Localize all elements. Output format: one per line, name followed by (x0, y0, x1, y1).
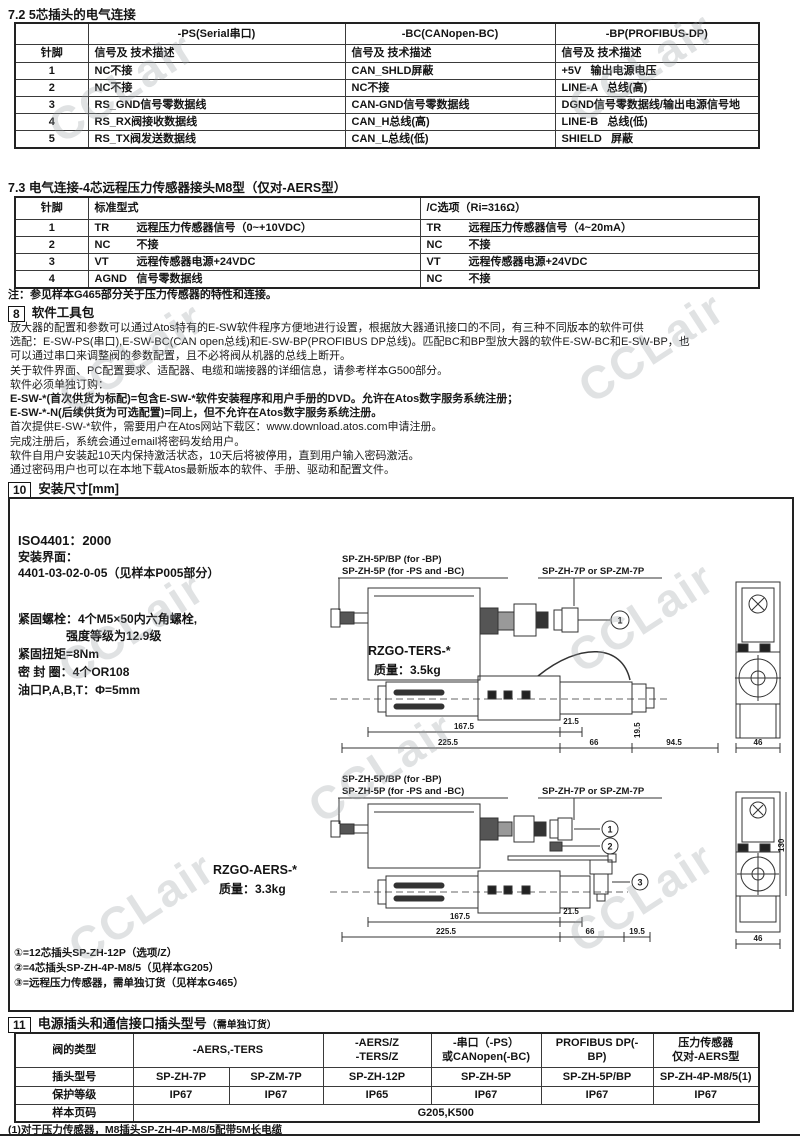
ps-cell: NC不接 (88, 62, 345, 79)
group-z-option: -AERS/Z-TERS/Z (323, 1033, 431, 1067)
plug-cell: SP-ZH-12P (323, 1067, 431, 1086)
pin-cell: 5 (15, 130, 88, 148)
table-row: 针脚 标准型式 /C选项（Ri=316Ω） (15, 197, 759, 219)
signal-code: TR (95, 221, 137, 235)
pin-cell: 1 (15, 219, 88, 236)
ps-cell: RS_TX阀发送数据线 (88, 130, 345, 148)
plug-cell: SP-ZM-7P (229, 1067, 323, 1086)
catalog-pages-cell: G205,K500 (133, 1104, 759, 1122)
signal-code: VT (427, 255, 469, 269)
signal-code: NC (95, 238, 137, 252)
corner-cell (15, 23, 88, 44)
plug-row-label: 插头型号 (15, 1067, 133, 1086)
callout-note-2: ②=4芯插头SP-ZH-4P-M8/5（见样本G205） (14, 961, 244, 976)
dim-21-5: 21.5 (563, 907, 579, 916)
callout-2: 2 (607, 842, 612, 852)
bp-cell: LINE-B 总线(低) (555, 113, 759, 130)
table-row: 1 TR远程压力传感器信号（0~+10VDC） TR远程压力传感器信号（4~20… (15, 219, 759, 236)
group-line: 仅对-AERS型 (660, 1050, 753, 1064)
opt-header: /C选项（Ri=316Ω） (420, 197, 759, 219)
col-header-ps: -PS(Serial串口) (88, 23, 345, 44)
pin-cell: 4 (15, 113, 88, 130)
std-cell: AGND信号零数据线 (88, 270, 420, 288)
mounting-interface-label: 安装界面： (18, 548, 78, 565)
mounting-interface-value: 4401-03-02-0-05（见样本P005部分） (18, 564, 219, 581)
plug-cell: SP-ZH-5P/BP (541, 1067, 653, 1086)
table-row: -PS(Serial串口) -BC(CANopen-BC) -BP(PROFIB… (15, 23, 759, 44)
bc-cell: NC不接 (345, 79, 555, 96)
table-row: 3 RS_GND信号零数据线 CAN-GND信号零数据线 DGND信号零数据线/… (15, 96, 759, 113)
connector-pinout-table: -PS(Serial串口) -BC(CANopen-BC) -BP(PROFIB… (14, 22, 760, 149)
ip-cell: IP67 (133, 1086, 229, 1104)
bp-cell: +5V 输出电源电压 (555, 62, 759, 79)
pin-header: 针脚 (15, 197, 88, 219)
opt-cell: VT远程传感器电源+24VDC (420, 253, 759, 270)
std-cell: NC不接 (88, 236, 420, 253)
bp-cell: SHIELD 屏蔽 (555, 130, 759, 148)
callout-3: 3 (637, 878, 642, 888)
col-header-bc: -BC(CANopen-BC) (345, 23, 555, 44)
section-7-3-title: 7.3 电气连接-4芯远程压力传感器接头M8型（仅对-AERS型） (8, 177, 346, 196)
connector-label-psbc: SP-ZH-5P (for -PS and -BC) (342, 566, 464, 577)
section-10-title: 安装尺寸[mm] (38, 482, 119, 496)
pin-cell: 2 (15, 236, 88, 253)
callout-notes: ①=12芯插头SP-ZH-12P（选项/Z） ②=4芯插头SP-ZH-4P-M8… (14, 946, 244, 991)
signal-desc: 信号零数据线 (137, 273, 203, 285)
section-11-title: 电源插头和通信接口插头型号 (38, 1016, 207, 1031)
signal-desc: 远程传感器电源+24VDC (137, 256, 256, 268)
bp-cell: LINE-A 总线(高) (555, 79, 759, 96)
section-8-number: 8 (8, 306, 25, 322)
signal-code: NC (427, 272, 469, 286)
iso-standard: ISO4401：2000 (18, 530, 111, 549)
dim-225-5: 225.5 (436, 927, 457, 936)
connector-label-bp: SP-ZH-5P/BP (for -BP) (342, 774, 442, 785)
dim-94-5: 94.5 (666, 738, 682, 747)
dim-167-5: 167.5 (454, 722, 475, 731)
rzgo-ters-drawing: SP-ZH-5P/BP (for -BP) SP-ZH-5P (for -PS … (328, 552, 790, 787)
paragraph-line: 选配：E-SW-PS(串口),E-SW-BC(CAN open总线)和E-SW-… (10, 335, 794, 349)
ps-cell: NC不接 (88, 79, 345, 96)
signal-desc: 不接 (469, 273, 491, 285)
callout-note-1: ①=12芯插头SP-ZH-12P（选项/Z） (14, 946, 244, 961)
section-11-header: 11电源插头和通信接口插头型号（需单独订货） (8, 1013, 277, 1033)
group-line: -AERS/Z (330, 1036, 425, 1050)
table-row: 保护等级 IP67 IP67 IP65 IP67 IP67 IP67 (15, 1086, 759, 1104)
dim-46: 46 (754, 738, 763, 747)
table-row: 针脚 信号及 技术描述 信号及 技术描述 信号及 技术描述 (15, 44, 759, 62)
dim-66: 66 (586, 927, 595, 936)
dim-19-5: 19.5 (633, 722, 642, 738)
section-10-header: 10安装尺寸[mm] (8, 478, 119, 498)
dim-66: 66 (590, 738, 599, 747)
page-bottom-rule (0, 1134, 800, 1136)
signal-code: VT (95, 255, 137, 269)
software-paragraph: 放大器的配置和参数可以通过Atos特有的E-SW软件程序方便地进行设置，根据放大… (10, 321, 794, 477)
seal-rings: 密 封 圈：4个OR108 (18, 663, 129, 680)
connector-label-bp: SP-ZH-5P/BP (for -BP) (342, 554, 442, 565)
section-7-2-title: 7.2 5芯插头的电气连接 (8, 4, 136, 23)
table-row: 1 NC不接 CAN_SHLD屏蔽 +5V 输出电源电压 (15, 62, 759, 79)
std-header: 标准型式 (88, 197, 420, 219)
dim-46: 46 (754, 934, 763, 943)
valve-type-header: 阀的类型 (15, 1033, 133, 1067)
ip-cell: IP67 (431, 1086, 541, 1104)
group-line: -串口（-PS） (438, 1036, 535, 1050)
ip-cell: IP67 (229, 1086, 323, 1104)
plug-cell: SP-ZH-7P (133, 1067, 229, 1086)
ip-cell: IP65 (323, 1086, 431, 1104)
paragraph-line: 关于软件界面、PC配置要求、适配器、电缆和端接器的详细信息，请参考样本G500部… (10, 364, 794, 378)
section-8-title: 软件工具包 (32, 306, 95, 320)
signal-desc: 不接 (469, 239, 491, 251)
pin-cell: 2 (15, 79, 88, 96)
table-row: 4 AGND信号零数据线 NC不接 (15, 270, 759, 288)
dim-130: 130 (777, 838, 786, 852)
paragraph-line: 通过密码用户也可以在本地下载Atos最新版本的软件、手册、驱动和配置文件。 (10, 463, 794, 477)
callout-note-3: ③=远程压力传感器，需单独订货（见样本G465） (14, 976, 244, 991)
group-line: 或CANopen(-BC) (438, 1050, 535, 1064)
group-aers-ters: -AERS,-TERS (133, 1033, 323, 1067)
ip-row-label: 保护等级 (15, 1086, 133, 1104)
desc-header: 信号及 技术描述 (88, 44, 345, 62)
section-11-number: 11 (8, 1017, 31, 1033)
table-row: 样本页码 G205,K500 (15, 1104, 759, 1122)
signal-desc: 远程压力传感器信号（4~20mA） (469, 222, 633, 234)
dim-225-5: 225.5 (438, 738, 459, 747)
sensor-pinout-table: 针脚 标准型式 /C选项（Ri=316Ω） 1 TR远程压力传感器信号（0~+1… (14, 196, 760, 289)
page-row-label: 样本页码 (15, 1104, 133, 1122)
signal-desc: 不接 (137, 239, 159, 251)
pin-cell: 1 (15, 62, 88, 79)
group-profibus: PROFIBUS DP(-BP) (541, 1033, 653, 1067)
bc-cell: CAN_H总线(高) (345, 113, 555, 130)
ip-cell: IP67 (541, 1086, 653, 1104)
signal-desc: 远程传感器电源+24VDC (469, 256, 588, 268)
ip-cell: IP67 (653, 1086, 759, 1104)
rzgo-aers-drawing: SP-ZH-5P/BP (for -BP) SP-ZH-5P (for -PS … (328, 772, 790, 957)
section-10-number: 10 (8, 482, 31, 498)
callout-1: 1 (607, 825, 612, 835)
sensor-note: 注：参见样本G465部分关于压力传感器的特性和连接。 (8, 286, 277, 302)
table-row: 2 NC不接 NC不接 (15, 236, 759, 253)
oil-ports: 油口P,A,B,T：Φ=5mm (18, 681, 140, 698)
opt-cell: TR远程压力传感器信号（4~20mA） (420, 219, 759, 236)
opt-cell: NC不接 (420, 270, 759, 288)
section-11-title-note: （需单独订货） (207, 1020, 277, 1031)
signal-code: AGND (95, 272, 137, 286)
std-cell: VT远程传感器电源+24VDC (88, 253, 420, 270)
table-row: 4 RS_RX阀接收数据线 CAN_H总线(高) LINE-B 总线(低) (15, 113, 759, 130)
signal-code: NC (427, 238, 469, 252)
model2-weight: 质量：3.3kg (219, 880, 286, 897)
col-header-bp: -BP(PROFIBUS-DP) (555, 23, 759, 44)
pin-cell: 3 (15, 253, 88, 270)
paragraph-line: 放大器的配置和参数可以通过Atos特有的E-SW软件程序方便地进行设置，根据放大… (10, 321, 794, 335)
fastening-bolts-line1: 紧固螺栓：4个M5×50内六角螺栓, (18, 610, 197, 627)
connector-label-7p: SP-ZH-7P or SP-ZM-7P (542, 566, 645, 577)
table-row: 3 VT远程传感器电源+24VDC VT远程传感器电源+24VDC (15, 253, 759, 270)
group-pressure-sensor: 压力传感器仅对-AERS型 (653, 1033, 759, 1067)
tightening-torque: 紧固扭矩=8Nm (18, 645, 99, 662)
pin-header: 针脚 (15, 44, 88, 62)
table-row: 阀的类型 -AERS,-TERS -AERS/Z-TERS/Z -串口（-PS）… (15, 1033, 759, 1067)
ps-cell: RS_RX阀接收数据线 (88, 113, 345, 130)
ps-cell: RS_GND信号零数据线 (88, 96, 345, 113)
model2-name: RZGO-AERS-* (213, 863, 297, 877)
plug-cell: SP-ZH-4P-M8/5(1) (653, 1067, 759, 1086)
bc-cell: CAN_L总线(低) (345, 130, 555, 148)
paragraph-line: E-SW-*-N(后续供货为可选配置)=同上，但不允许在Atos数字服务系统注册… (10, 406, 794, 420)
connector-label-7p: SP-ZH-7P or SP-ZM-7P (542, 786, 645, 797)
paragraph-line: 完成注册后，系统会通过email将密码发给用户。 (10, 435, 794, 449)
pin-cell: 4 (15, 270, 88, 288)
signal-desc: 远程压力传感器信号（0~+10VDC） (137, 222, 312, 234)
dim-19-5: 19.5 (629, 927, 645, 936)
callout-1: 1 (617, 616, 622, 626)
connector-label-psbc: SP-ZH-5P (for -PS and -BC) (342, 786, 464, 797)
dim-21-5: 21.5 (563, 717, 579, 726)
paragraph-line: 可以通过串口来调整阀的参数配置，且不必将阀从机器的总线上断开。 (10, 349, 794, 363)
section-8-header: 8软件工具包 (8, 302, 94, 322)
paragraph-line: 首次提供E-SW-*软件，需要用户在Atos网站下载区：www.download… (10, 420, 794, 434)
std-cell: TR远程压力传感器信号（0~+10VDC） (88, 219, 420, 236)
table-row: 插头型号 SP-ZH-7P SP-ZM-7P SP-ZH-12P SP-ZH-5… (15, 1067, 759, 1086)
table-row: 5 RS_TX阀发送数据线 CAN_L总线(低) SHIELD 屏蔽 (15, 130, 759, 148)
group-line: 压力传感器 (660, 1036, 753, 1050)
paragraph-line: E-SW-*(首次供货为标配)=包含E-SW-*软件安装程序和用户手册的DVD。… (10, 392, 794, 406)
paragraph-line: 软件必须单独订购： (10, 378, 794, 392)
dim-167-5: 167.5 (450, 912, 471, 921)
desc-header: 信号及 技术描述 (345, 44, 555, 62)
bp-cell: DGND信号零数据线/输出电源信号地 (555, 96, 759, 113)
plug-cell: SP-ZH-5P (431, 1067, 541, 1086)
paragraph-line: 软件自用户安装起10天内保持激活状态，10天后将被停用，直到用户输入密码激活。 (10, 449, 794, 463)
group-line: -TERS/Z (330, 1050, 425, 1064)
bc-cell: CAN-GND信号零数据线 (345, 96, 555, 113)
table-row: 2 NC不接 NC不接 LINE-A 总线(高) (15, 79, 759, 96)
plug-model-table: 阀的类型 -AERS,-TERS -AERS/Z-TERS/Z -串口（-PS）… (14, 1032, 760, 1123)
pin-cell: 3 (15, 96, 88, 113)
signal-code: TR (427, 221, 469, 235)
desc-header: 信号及 技术描述 (555, 44, 759, 62)
group-serial-canopen: -串口（-PS）或CANopen(-BC) (431, 1033, 541, 1067)
bc-cell: CAN_SHLD屏蔽 (345, 62, 555, 79)
opt-cell: NC不接 (420, 236, 759, 253)
fastening-bolts-line2: 强度等级为12.9级 (66, 627, 161, 644)
